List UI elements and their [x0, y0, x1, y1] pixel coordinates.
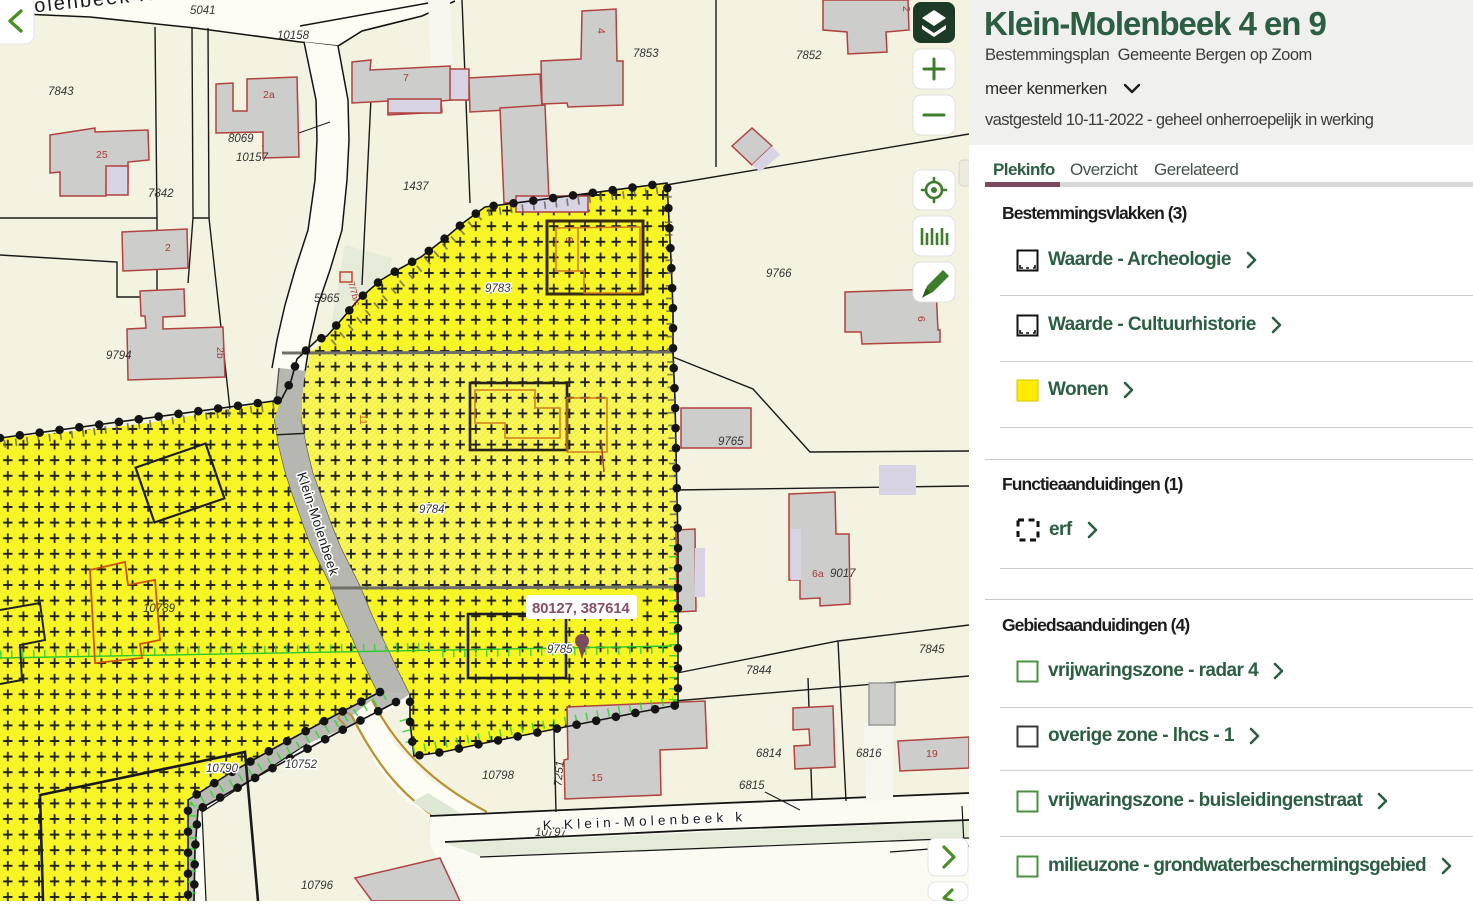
- svg-text:9785: 9785: [547, 644, 573, 656]
- svg-text:7845: 7845: [919, 644, 945, 656]
- svg-text:7251: 7251: [552, 760, 566, 787]
- svg-text:10752: 10752: [285, 759, 318, 771]
- svg-text:10790: 10790: [206, 763, 239, 775]
- svg-text:10157: 10157: [236, 152, 269, 164]
- svg-text:2: 2: [165, 242, 171, 254]
- svg-text:9: 9: [563, 237, 575, 243]
- svg-text:10158: 10158: [277, 30, 310, 42]
- svg-text:10798: 10798: [482, 770, 515, 782]
- svg-text:9794: 9794: [106, 350, 132, 362]
- svg-text:7853: 7853: [633, 48, 659, 60]
- svg-text:19: 19: [926, 748, 938, 760]
- svg-text:2a: 2a: [263, 89, 275, 101]
- svg-text:11: 11: [357, 414, 369, 425]
- svg-text:9784: 9784: [419, 504, 445, 516]
- svg-text:7: 7: [403, 72, 409, 84]
- svg-text:15: 15: [591, 772, 603, 784]
- svg-text:2b: 2b: [214, 347, 226, 359]
- svg-text:9765: 9765: [718, 436, 744, 448]
- svg-text:7842: 7842: [148, 188, 174, 200]
- svg-text:10789: 10789: [143, 603, 176, 615]
- svg-text:5965: 5965: [314, 293, 340, 305]
- svg-text:2: 2: [900, 6, 912, 12]
- svg-text:6: 6: [915, 316, 927, 322]
- svg-text:6814: 6814: [756, 748, 782, 760]
- svg-text:1437: 1437: [403, 181, 429, 193]
- svg-text:9017: 9017: [830, 568, 856, 580]
- svg-text:7844: 7844: [746, 665, 772, 677]
- svg-text:4: 4: [595, 28, 607, 34]
- svg-text:7843: 7843: [48, 86, 74, 98]
- svg-text:25: 25: [96, 149, 108, 161]
- svg-text:10796: 10796: [301, 880, 334, 892]
- svg-text:6815: 6815: [739, 780, 765, 792]
- svg-text:9783: 9783: [485, 283, 511, 295]
- svg-text:6a: 6a: [812, 568, 824, 580]
- svg-text:9766: 9766: [766, 268, 792, 280]
- svg-text:80127, 387614: 80127, 387614: [532, 600, 630, 617]
- svg-text:5041: 5041: [190, 5, 216, 17]
- svg-text:7852: 7852: [796, 50, 822, 62]
- svg-text:6816: 6816: [856, 748, 882, 760]
- svg-text:8069: 8069: [228, 133, 254, 145]
